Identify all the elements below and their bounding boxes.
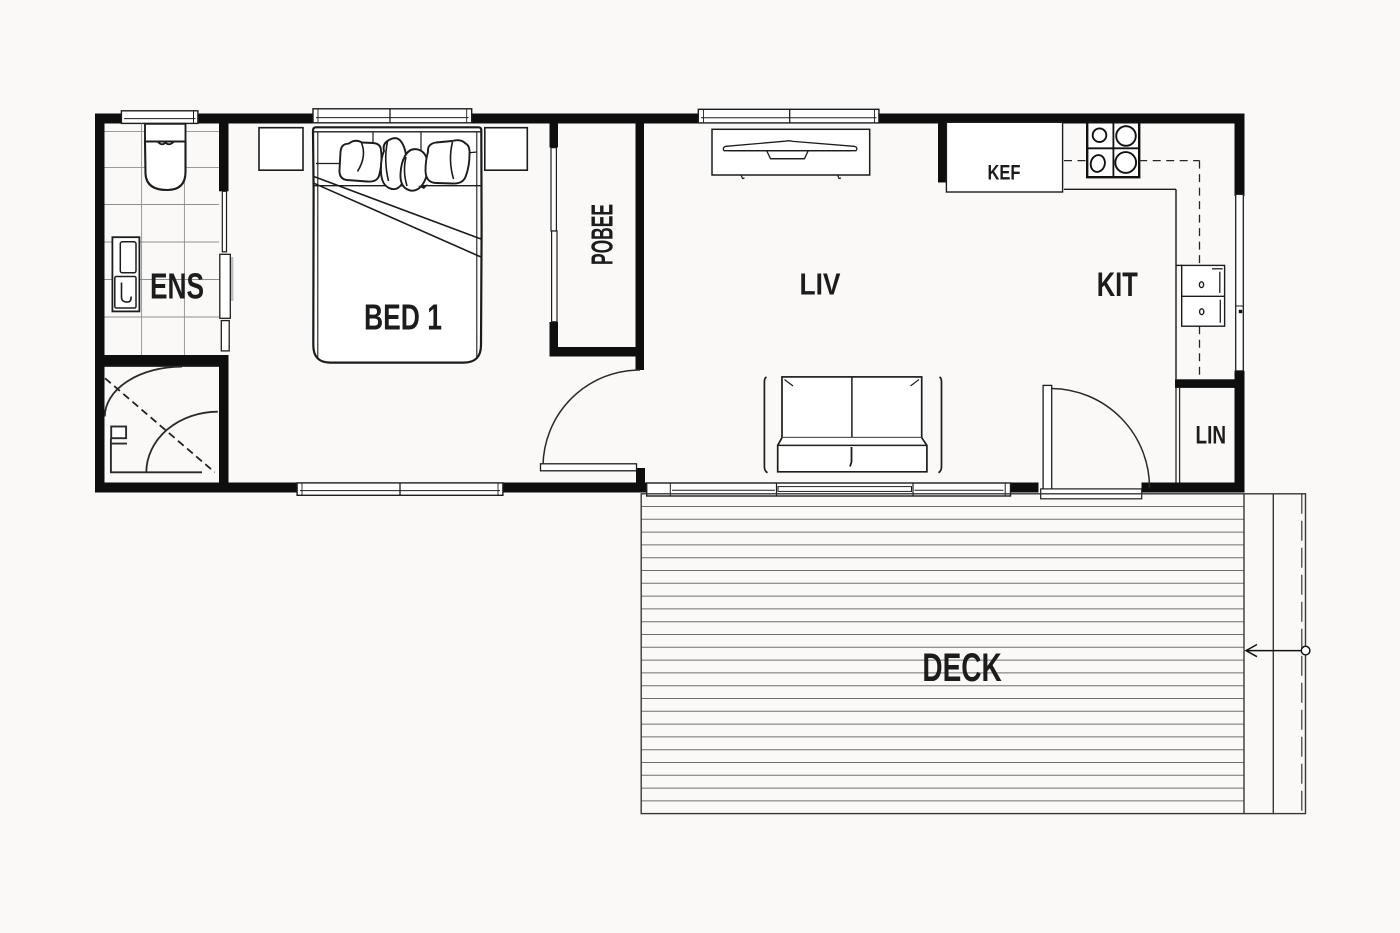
svg-text:KEF: KEF — [988, 162, 1021, 185]
svg-text:DECK: DECK — [922, 646, 1001, 690]
svg-text:BED 1: BED 1 — [364, 297, 442, 338]
svg-text:POBEE: POBEE — [585, 204, 620, 265]
svg-text:LIV: LIV — [800, 267, 841, 302]
svg-text:KIT: KIT — [1097, 266, 1138, 304]
svg-text:ENS: ENS — [150, 266, 204, 307]
svg-text:LIN: LIN — [1196, 422, 1227, 450]
